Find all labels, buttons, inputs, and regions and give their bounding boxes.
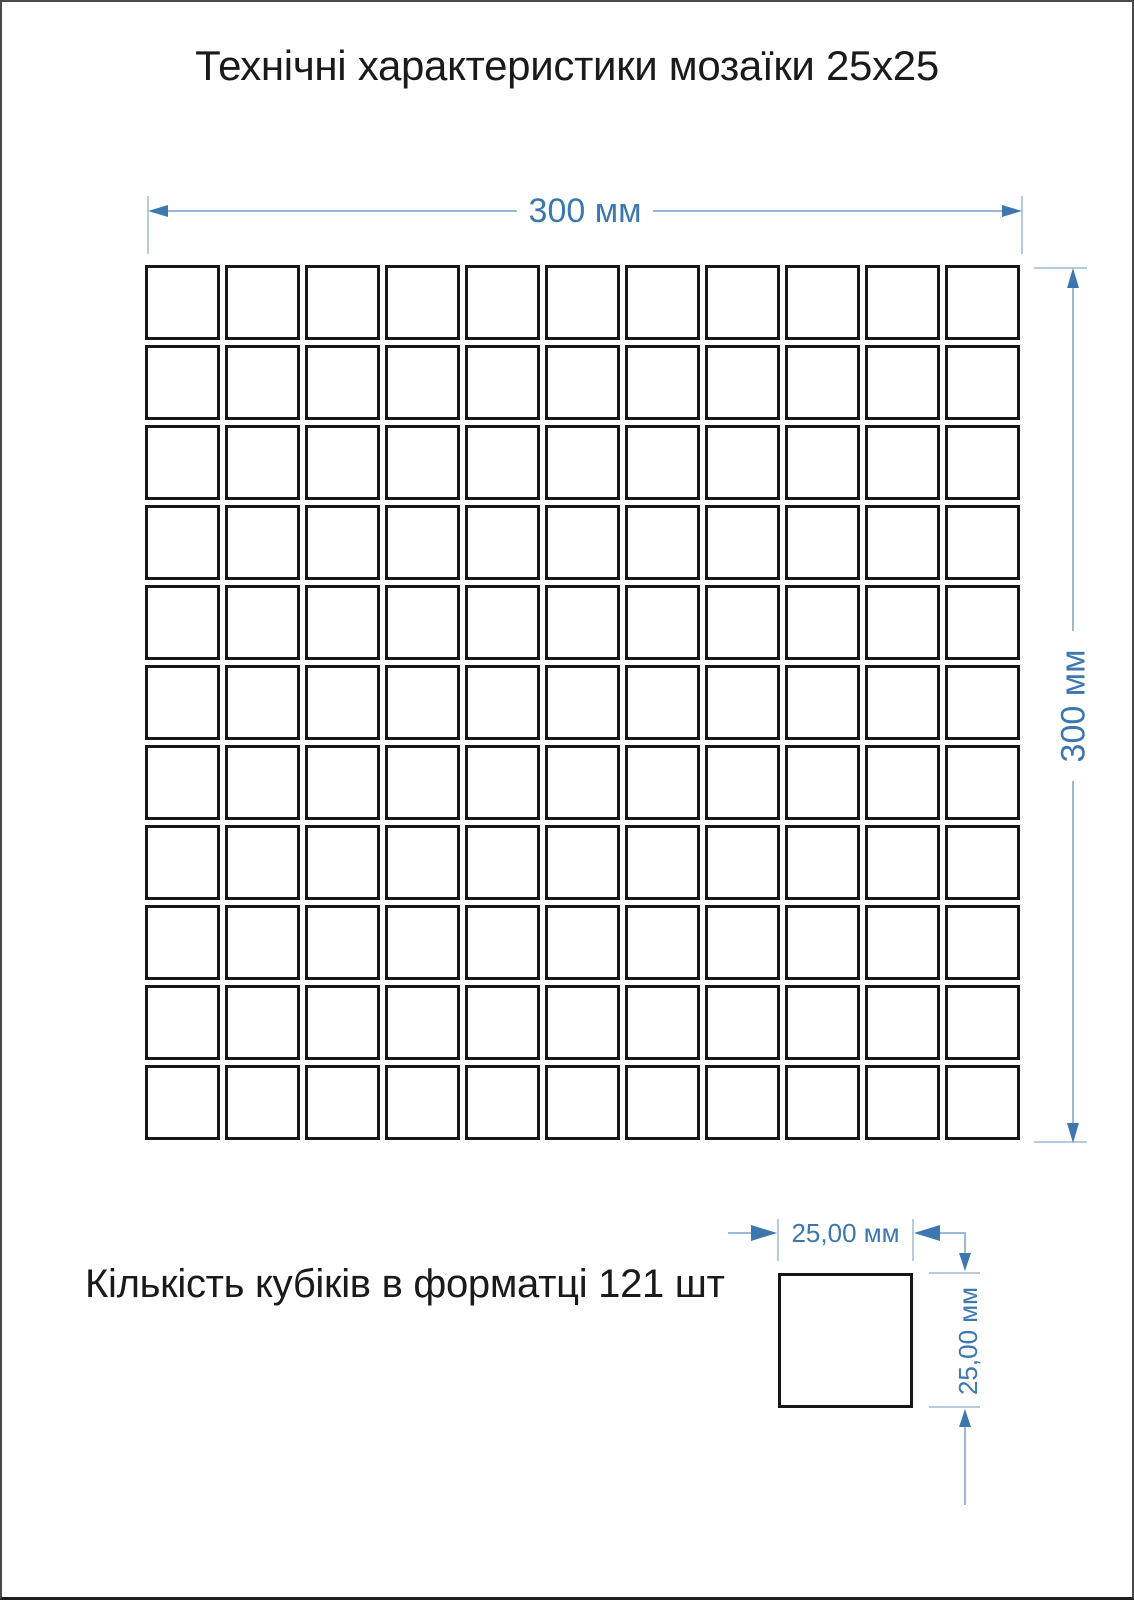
mosaic-tile-cell [385, 425, 460, 500]
mosaic-tile-cell [625, 665, 700, 740]
mosaic-tile-cell [785, 985, 860, 1060]
sheet-height-dim-label-box: 300 мм [1017, 631, 1130, 781]
mosaic-tile-cell [785, 905, 860, 980]
mosaic-tile-cell [225, 585, 300, 660]
mosaic-tile-cell [225, 905, 300, 980]
dimension-line [728, 1232, 751, 1234]
mosaic-tile-cell [705, 585, 780, 660]
mosaic-tile-cell [545, 825, 620, 900]
mosaic-tile-cell [225, 825, 300, 900]
spec-sheet: Технічні характеристики мозаїки 25х25 30… [0, 0, 1134, 1600]
mosaic-tile-cell [705, 745, 780, 820]
mosaic-tile-cell [545, 585, 620, 660]
mosaic-tile-cell [385, 825, 460, 900]
tile-height-arrow-bottom [959, 1409, 972, 1505]
mosaic-tile-cell [385, 585, 460, 660]
mosaic-tile-cell [465, 985, 540, 1060]
mosaic-tile-cell [785, 745, 860, 820]
sheet-width-dim-label: 300 мм [517, 194, 654, 228]
mosaic-tile-cell [145, 745, 220, 820]
arrow-right-icon [751, 1225, 777, 1241]
mosaic-tile-cell [305, 585, 380, 660]
tile-count-note: Кількість кубіків в форматці 121 шт [85, 1262, 725, 1307]
mosaic-tile-cell [705, 825, 780, 900]
mosaic-tile-cell [225, 985, 300, 1060]
mosaic-tile-cell [465, 265, 540, 340]
mosaic-tile-cell [145, 905, 220, 980]
extension-line-bottom [929, 1406, 980, 1408]
arrow-up-icon [1067, 268, 1079, 288]
mosaic-tile-cell [705, 425, 780, 500]
dimension-line [1072, 781, 1074, 1124]
mosaic-tile-cell [225, 505, 300, 580]
mosaic-tile-cell [785, 825, 860, 900]
mosaic-tile-cell [705, 665, 780, 740]
mosaic-tile-cell [945, 745, 1020, 820]
mosaic-tile-cell [225, 1065, 300, 1140]
mosaic-tile-cell [865, 1065, 940, 1140]
mosaic-tile-cell [385, 345, 460, 420]
dimension-line [1072, 288, 1074, 631]
mosaic-tile-cell [305, 985, 380, 1060]
mosaic-tile-cell [705, 1065, 780, 1140]
mosaic-tile-cell [305, 1065, 380, 1140]
mosaic-tile-cell [385, 905, 460, 980]
mosaic-tile-cell [545, 1065, 620, 1140]
mosaic-tile-cell [465, 665, 540, 740]
mosaic-tile-cell [305, 345, 380, 420]
mosaic-tile-cell [945, 425, 1020, 500]
mosaic-tile-cell [545, 665, 620, 740]
mosaic-tile-cell [945, 985, 1020, 1060]
mosaic-tile-cell [305, 745, 380, 820]
arrow-up-icon [959, 1409, 971, 1427]
mosaic-tile-cell [785, 425, 860, 500]
mosaic-tile-cell [625, 905, 700, 980]
page-title: Технічні характеристики мозаїки 25х25 [2, 42, 1132, 90]
mosaic-tile-cell [225, 265, 300, 340]
mosaic-tile-cell [865, 265, 940, 340]
mosaic-tile-cell [705, 905, 780, 980]
mosaic-tile-cell [625, 825, 700, 900]
mosaic-tile-cell [865, 825, 940, 900]
mosaic-tile-cell [625, 745, 700, 820]
mosaic-tile-cell [945, 905, 1020, 980]
mosaic-tile-cell [865, 745, 940, 820]
dimension-line [964, 1427, 966, 1505]
dimension-line [964, 1232, 966, 1253]
mosaic-tile-cell [945, 825, 1020, 900]
mosaic-tile-cell [465, 505, 540, 580]
mosaic-tile-cell [145, 825, 220, 900]
mosaic-tile-cell [545, 425, 620, 500]
mosaic-tile-cell [465, 345, 540, 420]
mosaic-tile-cell [545, 345, 620, 420]
mosaic-tile-cell [945, 345, 1020, 420]
mosaic-tile-cell [145, 1065, 220, 1140]
mosaic-tile-cell [465, 425, 540, 500]
mosaic-tile-cell [865, 985, 940, 1060]
mosaic-tile-cell [145, 665, 220, 740]
arrow-left-icon [914, 1225, 940, 1241]
mosaic-tile-cell [945, 1065, 1020, 1140]
mosaic-tile-cell [705, 345, 780, 420]
mosaic-tile-cell [625, 425, 700, 500]
mosaic-tile-cell [865, 345, 940, 420]
mosaic-tile-cell [305, 425, 380, 500]
mosaic-tile-cell [225, 745, 300, 820]
mosaic-tile-cell [145, 985, 220, 1060]
mosaic-tile-cell [465, 1065, 540, 1140]
tile-height-dim-label: 25,00 мм [955, 1286, 981, 1394]
mosaic-tile-cell [705, 505, 780, 580]
mosaic-tile-cell [865, 425, 940, 500]
mosaic-tile-cell [785, 505, 860, 580]
mosaic-tile-cell [785, 1065, 860, 1140]
arrow-down-icon [959, 1253, 971, 1271]
mosaic-tile-cell [705, 265, 780, 340]
mosaic-tile-cell [785, 265, 860, 340]
mosaic-tile-cell [385, 745, 460, 820]
mosaic-grid [145, 265, 1020, 1140]
mosaic-tile-cell [545, 745, 620, 820]
mosaic-tile-cell [865, 505, 940, 580]
mosaic-tile-cell [865, 665, 940, 740]
mosaic-tile-cell [545, 505, 620, 580]
mosaic-tile-cell [625, 1065, 700, 1140]
arrow-down-icon [1067, 1123, 1079, 1143]
mosaic-tile-cell [225, 665, 300, 740]
mosaic-tile-cell [385, 265, 460, 340]
mosaic-tile-cell [625, 345, 700, 420]
mosaic-tile-cell [385, 505, 460, 580]
mosaic-tile-cell [305, 825, 380, 900]
sheet-height-dim-label: 300 мм [1056, 649, 1090, 762]
mosaic-tile-cell [785, 345, 860, 420]
tile-height-arrow-top [959, 1232, 972, 1271]
dimension-line [653, 210, 1002, 212]
mosaic-tile-cell [145, 265, 220, 340]
mosaic-tile-cell [625, 265, 700, 340]
arrow-left-icon [148, 205, 168, 217]
mosaic-tile-cell [145, 425, 220, 500]
mosaic-tile-cell [465, 825, 540, 900]
tile-width-arrow-left [728, 1225, 777, 1241]
tile-height-dim-label-box: 25,00 мм [946, 1273, 990, 1408]
mosaic-tile-cell [945, 665, 1020, 740]
mosaic-tile-cell [625, 505, 700, 580]
dimension-line [168, 210, 517, 212]
tile-width-dim-label: 25,00 мм [778, 1220, 913, 1246]
sheet-height-dimension: 300 мм [1052, 268, 1094, 1143]
mosaic-tile-cell [945, 505, 1020, 580]
sheet-width-dimension: 300 мм [148, 191, 1022, 231]
mosaic-tile-cell [545, 985, 620, 1060]
mosaic-tile-cell [305, 665, 380, 740]
mosaic-tile-cell [145, 345, 220, 420]
mosaic-tile-cell [945, 585, 1020, 660]
mosaic-tile-cell [785, 665, 860, 740]
mosaic-tile-cell [385, 665, 460, 740]
mosaic-tile-cell [465, 745, 540, 820]
arrow-right-icon [1002, 205, 1022, 217]
mosaic-tile-cell [145, 505, 220, 580]
mosaic-tile-cell [305, 505, 380, 580]
mosaic-tile-cell [465, 585, 540, 660]
mosaic-tile-cell [705, 985, 780, 1060]
mosaic-tile-cell [305, 265, 380, 340]
mosaic-tile-cell [385, 1065, 460, 1140]
mosaic-tile-cell [145, 585, 220, 660]
mosaic-tile-cell [545, 265, 620, 340]
mosaic-tile-cell [785, 585, 860, 660]
mosaic-tile-cell [545, 905, 620, 980]
mosaic-tile-cell [865, 905, 940, 980]
tile-detail-square [778, 1273, 913, 1408]
mosaic-tile-cell [305, 905, 380, 980]
mosaic-tile-cell [865, 585, 940, 660]
mosaic-tile-cell [945, 265, 1020, 340]
mosaic-tile-cell [465, 905, 540, 980]
mosaic-tile-cell [625, 585, 700, 660]
mosaic-tile-cell [625, 985, 700, 1060]
mosaic-tile-cell [385, 985, 460, 1060]
mosaic-tile-cell [225, 425, 300, 500]
mosaic-tile-cell [225, 345, 300, 420]
